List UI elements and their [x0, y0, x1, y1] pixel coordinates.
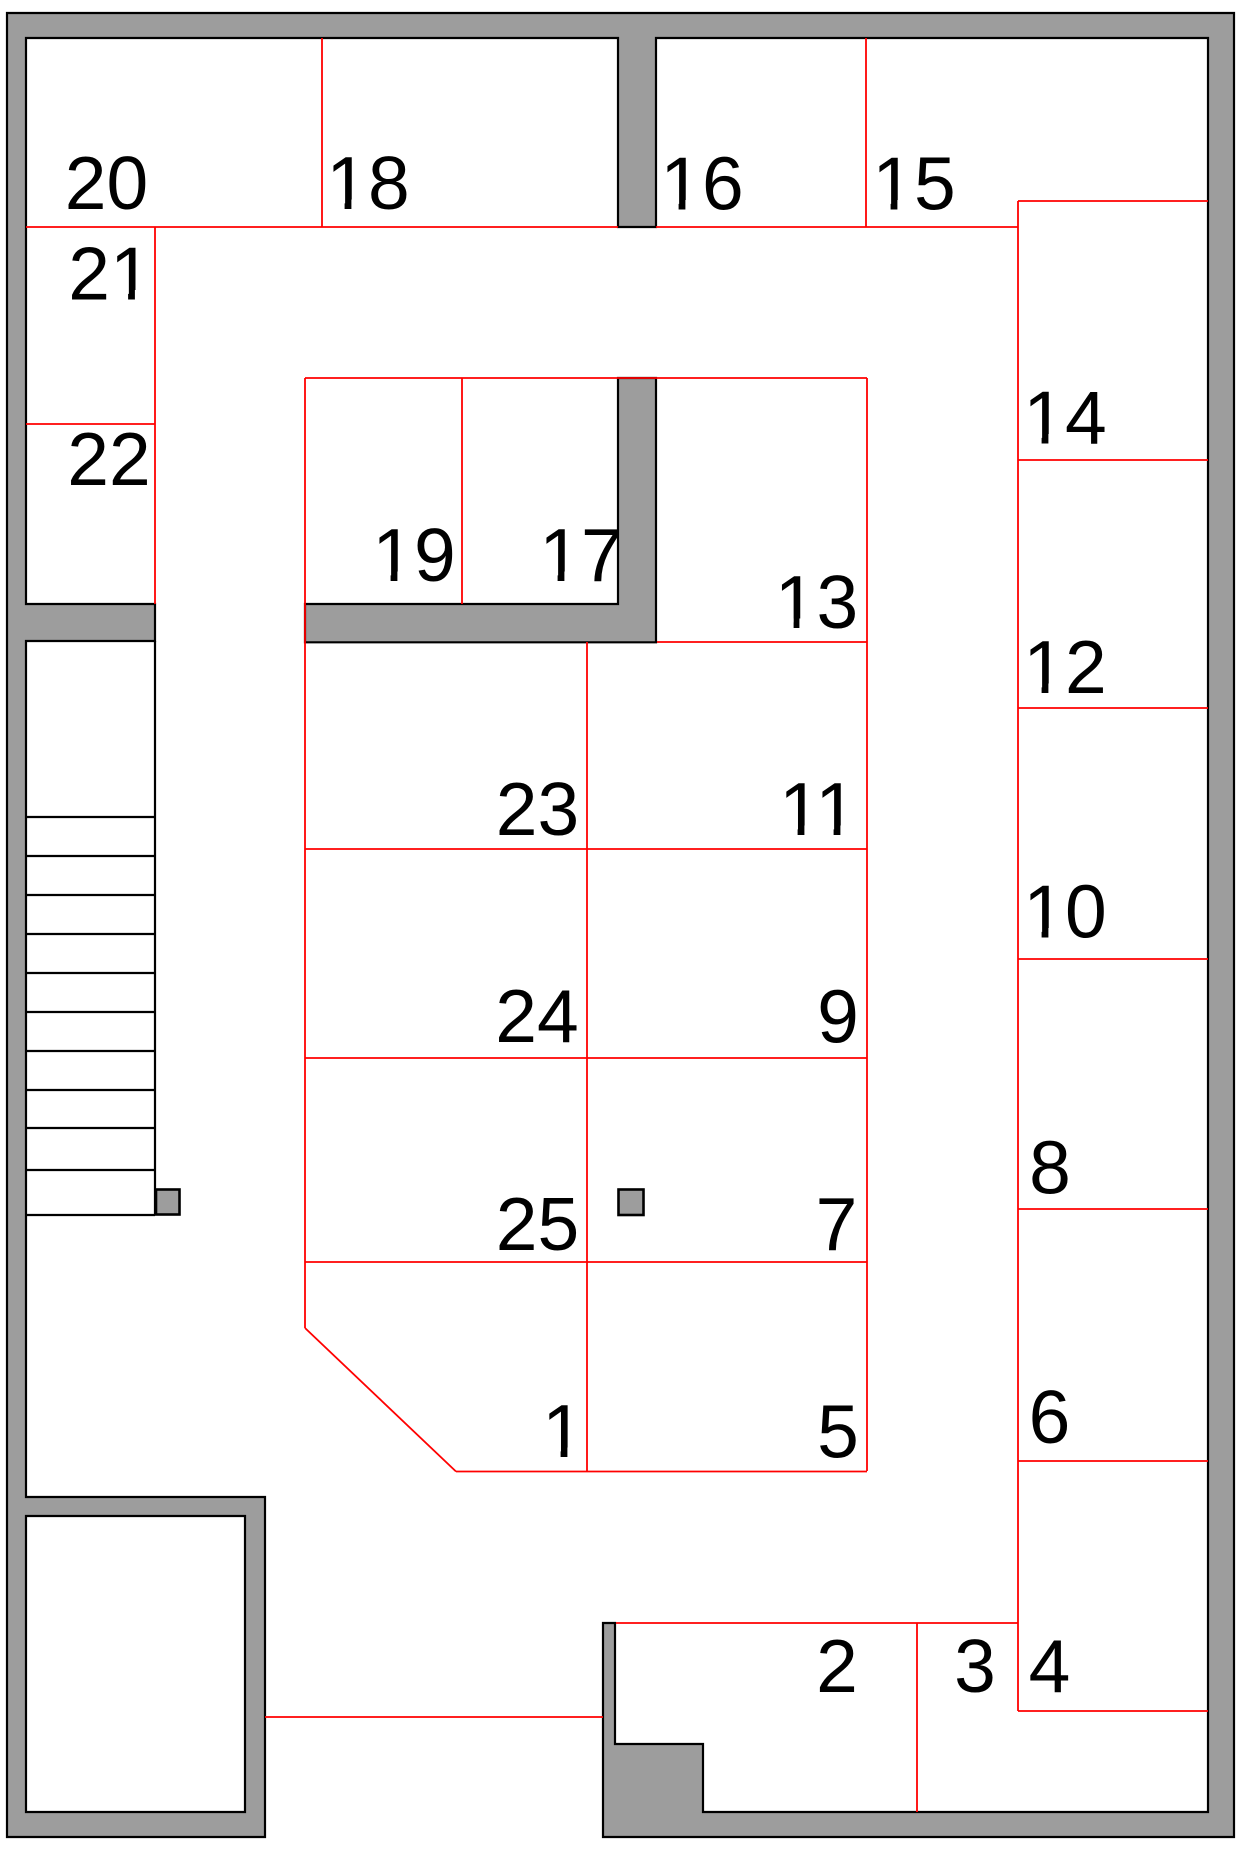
svg-text:21: 21: [68, 232, 151, 316]
svg-text:25: 25: [496, 1182, 579, 1266]
svg-text:6: 6: [1029, 1375, 1071, 1459]
svg-text:17: 17: [539, 513, 622, 597]
svg-text:10: 10: [1023, 870, 1106, 954]
svg-text:16: 16: [660, 142, 743, 226]
svg-text:19: 19: [372, 513, 455, 597]
svg-text:15: 15: [872, 142, 955, 226]
svg-text:20: 20: [65, 141, 148, 225]
svg-text:12: 12: [1023, 625, 1106, 709]
svg-text:22: 22: [67, 417, 150, 501]
svg-text:8: 8: [1029, 1126, 1071, 1210]
svg-text:24: 24: [495, 974, 578, 1058]
svg-text:9: 9: [817, 975, 859, 1059]
svg-text:4: 4: [1029, 1624, 1071, 1708]
svg-text:3: 3: [954, 1624, 996, 1708]
svg-text:14: 14: [1023, 376, 1106, 460]
svg-text:23: 23: [496, 767, 579, 851]
svg-text:18: 18: [326, 141, 409, 225]
svg-text:5: 5: [817, 1390, 859, 1474]
svg-text:2: 2: [816, 1624, 858, 1708]
svg-text:1: 1: [542, 1389, 584, 1473]
svg-text:11: 11: [779, 767, 857, 851]
svg-text:7: 7: [816, 1182, 858, 1266]
svg-text:13: 13: [775, 560, 858, 644]
